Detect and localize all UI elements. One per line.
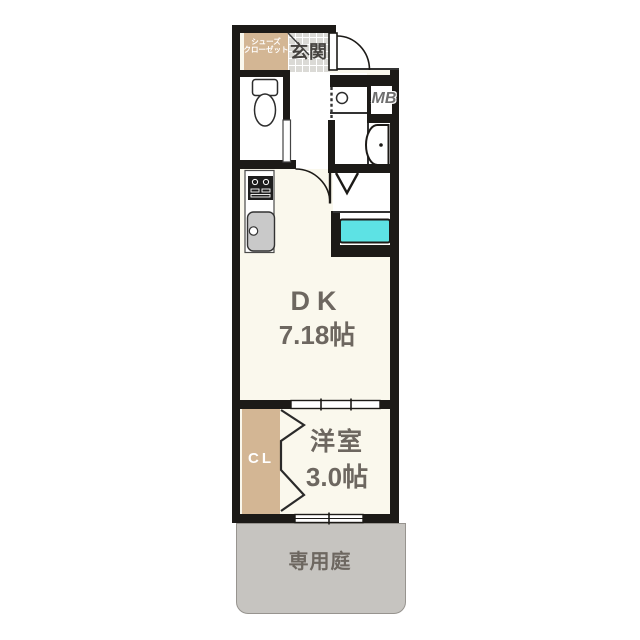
western-room-size: 3.0帖 [287, 463, 387, 492]
wall-bath-top [330, 75, 367, 87]
western-room-name: 洋室 [287, 429, 387, 457]
meter-box-label: MB [366, 90, 402, 108]
bathtub-nook-floor [367, 123, 390, 164]
washbasin-counter-line [330, 112, 367, 114]
wall-alcove-bottom [331, 245, 399, 257]
wall-shoecloset-bottom [232, 70, 290, 77]
wall-bottom [232, 514, 399, 523]
genkan-label: 玄関 [288, 43, 330, 65]
sliding-door-cap-left [283, 400, 291, 409]
wall-dk-bedroom-left [232, 400, 283, 409]
dk-room-name: DK [255, 287, 379, 317]
private-garden-label: 専用庭 [236, 551, 404, 573]
closet-label: CL [242, 451, 280, 468]
hallway-floor [288, 73, 330, 169]
laundry-alcove-floor [333, 173, 390, 245]
wall-left [232, 25, 240, 523]
tub-nook-line [367, 123, 369, 164]
wall-toilet-right [283, 70, 290, 122]
entry-step-line [330, 68, 399, 70]
wall-bath-bottom [328, 164, 399, 173]
wall-top [232, 25, 336, 33]
entrance-outside-area [334, 25, 400, 68]
floorplan-canvas: 玄関 シューズ クローゼット MB DK 7.18帖 洋室 3.0帖 CL 専用… [0, 0, 640, 640]
wall-right [390, 68, 399, 523]
shoe-closet-label: シューズ クローゼット [243, 38, 289, 55]
sliding-door-cap-right [380, 400, 390, 409]
shoe-closet-label-line2: クローゼット [243, 46, 289, 54]
dk-room-size: 7.18帖 [248, 321, 386, 350]
alcove-divider-line [333, 211, 390, 213]
wall-kitchen-top [232, 160, 296, 169]
